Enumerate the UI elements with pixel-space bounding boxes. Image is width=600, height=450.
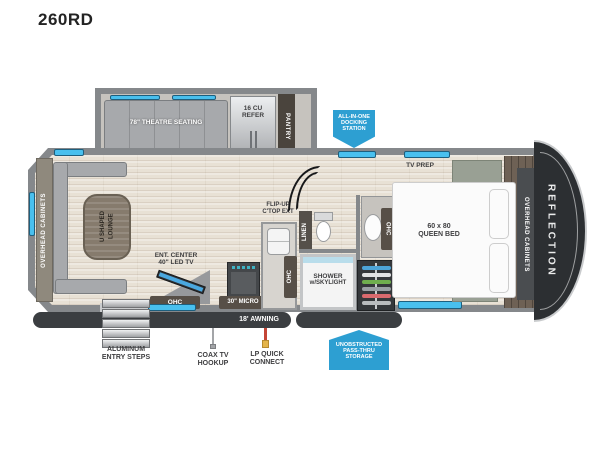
lp-connector-tip: [262, 340, 269, 348]
queen-bed: 60 x 80 QUEEN BED: [392, 182, 516, 298]
brand-label: REFLECTION: [546, 184, 557, 278]
refrigerator-handle: [255, 131, 257, 149]
toilet: [316, 221, 331, 242]
docking-station-badge: ALL-IN-ONE DOCKING STATION: [333, 110, 375, 148]
pillow: [489, 189, 509, 239]
bath-partition: [299, 249, 357, 253]
u-shaped-lounge-table: U SHAPED LOUNGE: [83, 194, 131, 260]
lounge-bench-bottom: [55, 279, 127, 294]
entry-steps: [102, 299, 150, 343]
ent-center-label: ENT. CENTER 40" LED TV: [144, 252, 208, 267]
coax-connector-tip: [210, 344, 216, 349]
lounge-bench-left: [53, 162, 68, 294]
kitchen-sink: [267, 228, 290, 255]
window: [338, 151, 376, 158]
window: [404, 151, 450, 158]
coax-hookup-label: COAX TV HOOKUP: [185, 352, 241, 368]
pantry-label: PANTRY: [283, 113, 290, 140]
refrigerator: 16 CU REFER: [230, 96, 276, 156]
entry-steps-label: ALUMINUM ENTRY STEPS: [84, 346, 168, 362]
ohc-bar-kitchen: OHC: [284, 256, 297, 298]
bath-sink: [364, 214, 382, 241]
window: [398, 301, 462, 309]
tv-prep-label: TV PREP: [390, 162, 450, 169]
window: [54, 149, 84, 156]
window: [29, 192, 35, 236]
microwave-bar: 30" MICRO: [219, 296, 267, 309]
floorplan-title: 260RD: [38, 10, 93, 30]
coax-connector: [212, 328, 214, 345]
awning-label: 18' AWNING: [33, 312, 291, 324]
pass-thru-storage-badge: UNOBSTRUCTED PASS-THRU STORAGE: [329, 330, 389, 370]
toilet-tank: [314, 212, 333, 221]
overhead-cabinets-left: OVERHEAD CABINETS: [36, 158, 53, 302]
brand-mark: REFLECTION: [542, 160, 560, 302]
theatre-seating: [104, 100, 228, 156]
theatre-seating-label: 78" THEATRE SEATING: [104, 119, 228, 126]
pass-thru-bar: [296, 312, 402, 328]
linen-closet: LINEN: [299, 211, 312, 253]
overhead-cabinets-bedroom-label: OVERHEAD CABINETS: [522, 197, 529, 272]
window: [148, 304, 196, 311]
lp-quick-connect-label: LP QUICK CONNECT: [239, 351, 295, 367]
refrigerator-handle: [250, 131, 252, 149]
awning-bar: 18' AWNING: [33, 312, 291, 328]
overhead-cabinets-left-label: OVERHEAD CABINETS: [41, 193, 48, 268]
wardrobe: [357, 260, 395, 311]
pillow: [489, 243, 509, 293]
overhead-cabinets-bedroom: OVERHEAD CABINETS: [517, 168, 534, 300]
range-stove: [227, 262, 260, 298]
floorplan-diagram: 260RD 78" THEATRE SEATING 16 CU REFER PA…: [0, 0, 600, 450]
bedroom-bench-top: [452, 160, 502, 184]
shower: SHOWER w/SKYLIGHT: [300, 254, 356, 310]
